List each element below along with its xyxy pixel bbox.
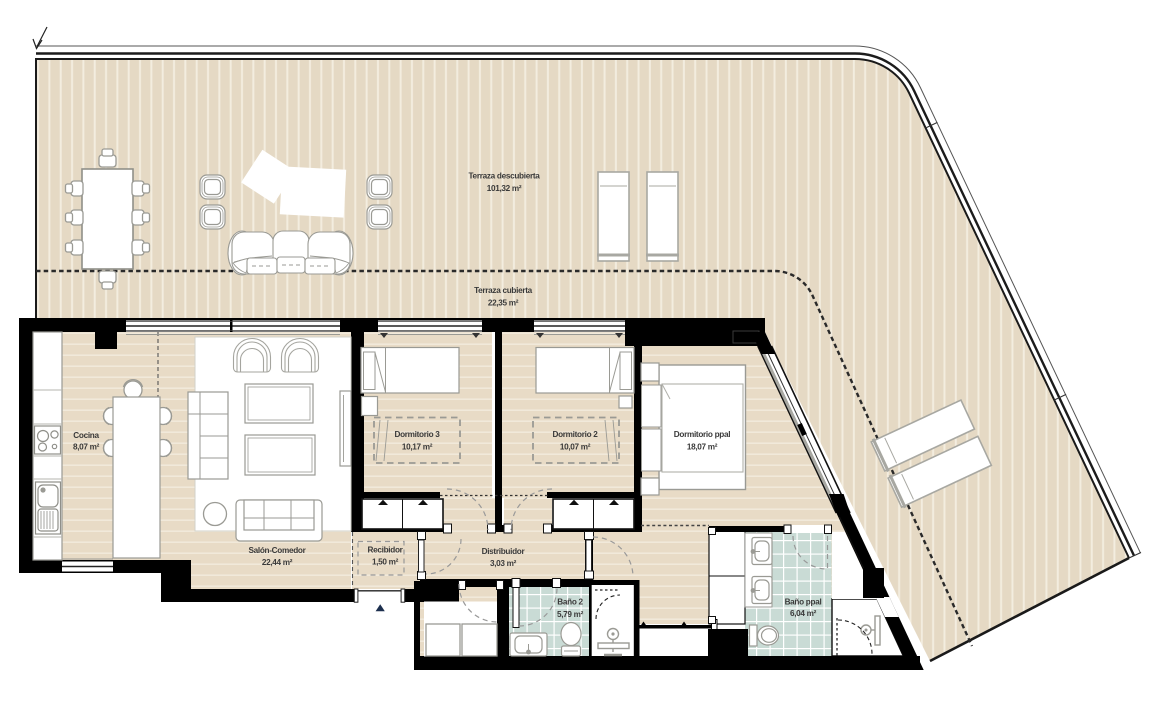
svg-text:5,79 m²: 5,79 m² <box>557 610 584 619</box>
svg-text:Distribuidor: Distribuidor <box>482 547 526 556</box>
svg-text:10,17 m²: 10,17 m² <box>402 443 433 452</box>
svg-text:3,03 m²: 3,03 m² <box>490 559 517 568</box>
svg-text:Terraza descubierta: Terraza descubierta <box>468 172 540 181</box>
svg-text:101,32 m²: 101,32 m² <box>487 184 522 193</box>
svg-text:1,50 m²: 1,50 m² <box>372 558 399 567</box>
svg-text:6,04 m²: 6,04 m² <box>790 609 817 618</box>
svg-text:Dormitorio 3: Dormitorio 3 <box>394 430 440 439</box>
svg-text:Cocina: Cocina <box>73 431 99 440</box>
svg-text:10,07 m²: 10,07 m² <box>560 443 591 452</box>
svg-text:8,07 m²: 8,07 m² <box>73 443 100 452</box>
svg-text:Recibidor: Recibidor <box>367 546 403 555</box>
svg-text:Salón-Comedor: Salón-Comedor <box>248 546 306 555</box>
svg-text:Terraza cubierta: Terraza cubierta <box>474 286 533 295</box>
svg-text:18,07 m²: 18,07 m² <box>687 443 718 452</box>
svg-text:Baño ppal: Baño ppal <box>785 598 822 607</box>
svg-text:Dormitorio ppal: Dormitorio ppal <box>674 430 730 439</box>
svg-text:Dormitorio 2: Dormitorio 2 <box>552 430 598 439</box>
svg-text:22,35 m²: 22,35 m² <box>488 299 519 308</box>
svg-text:22,44 m²: 22,44 m² <box>262 558 293 567</box>
svg-text:Baño 2: Baño 2 <box>557 598 583 607</box>
